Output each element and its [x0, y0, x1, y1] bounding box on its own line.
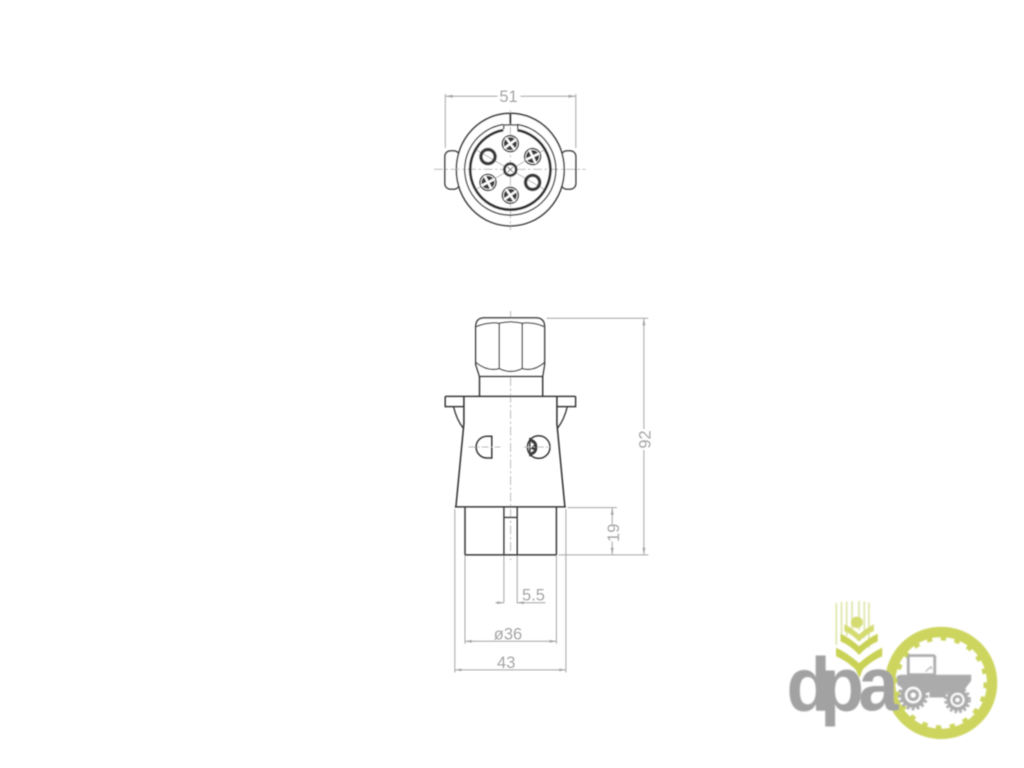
svg-text:43: 43: [497, 654, 515, 672]
svg-text:5.5: 5.5: [522, 587, 545, 605]
svg-text:ø36: ø36: [494, 626, 522, 644]
svg-text:51: 51: [499, 88, 517, 106]
svg-text:a: a: [858, 642, 899, 727]
svg-text:19: 19: [605, 524, 623, 542]
svg-text:92: 92: [636, 430, 654, 448]
